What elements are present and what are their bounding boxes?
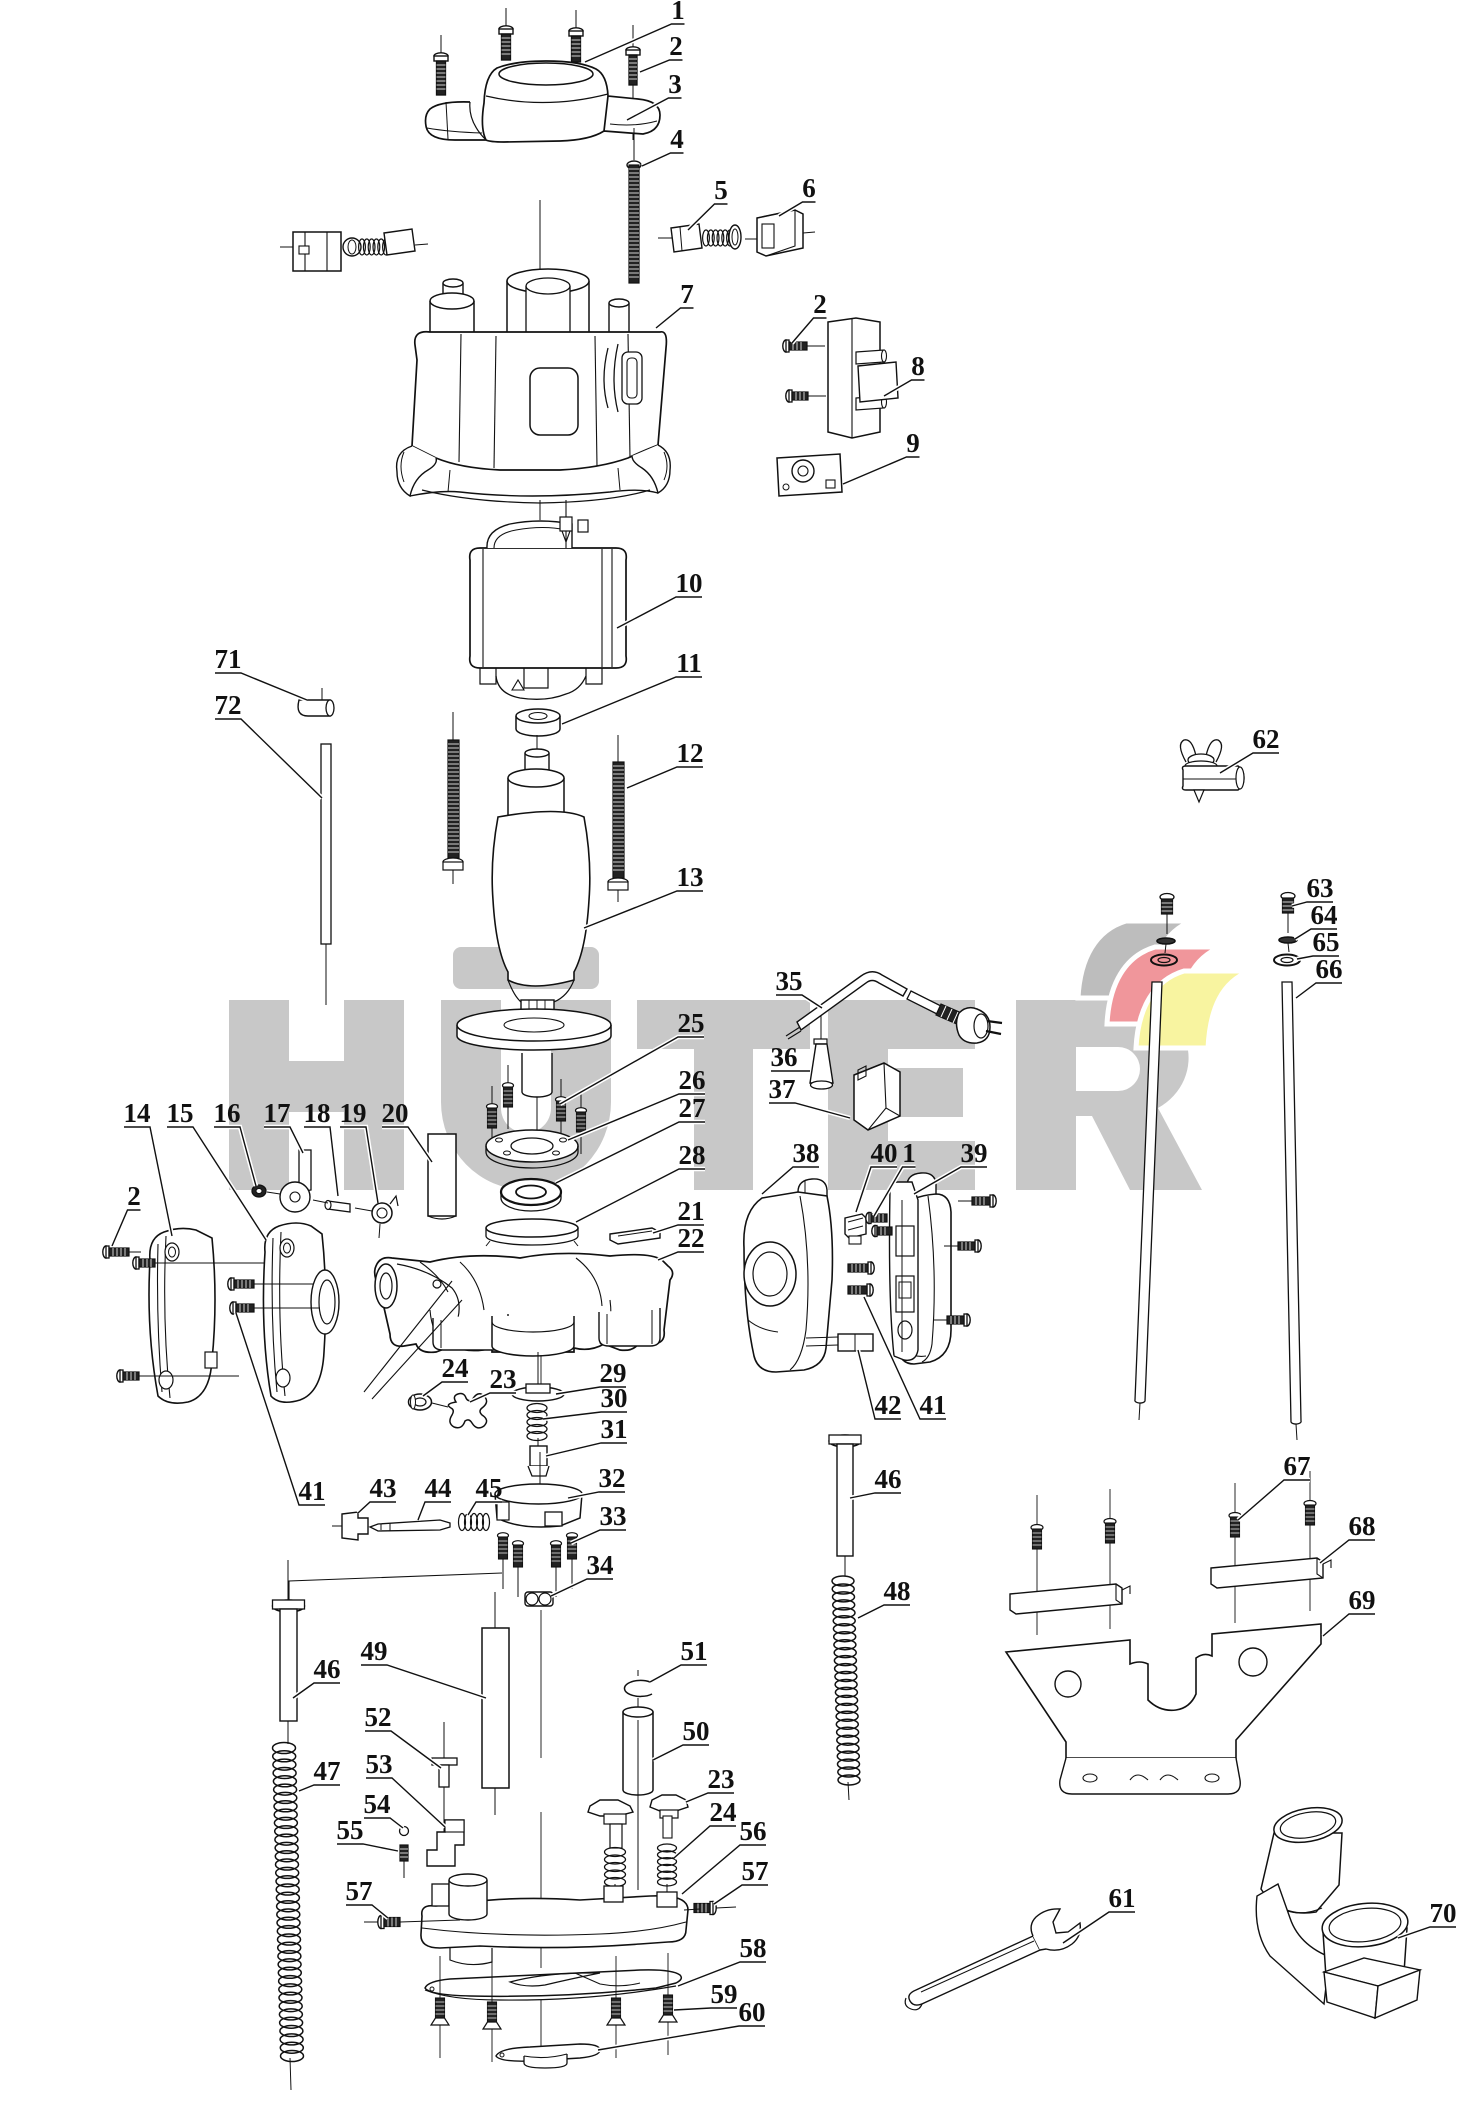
svg-text:39: 39 <box>961 1138 988 1168</box>
svg-text:55: 55 <box>337 1815 364 1845</box>
svg-text:2: 2 <box>669 31 683 61</box>
svg-text:22: 22 <box>678 1223 705 1253</box>
svg-text:15: 15 <box>167 1098 194 1128</box>
svg-text:6: 6 <box>802 173 816 203</box>
svg-text:11: 11 <box>676 648 702 678</box>
svg-text:41: 41 <box>299 1476 326 1506</box>
svg-text:26: 26 <box>679 1065 706 1095</box>
svg-text:48: 48 <box>884 1576 911 1606</box>
svg-text:31: 31 <box>601 1414 628 1444</box>
svg-text:70: 70 <box>1430 1898 1457 1928</box>
svg-text:13: 13 <box>677 862 704 892</box>
svg-text:41: 41 <box>920 1390 947 1420</box>
svg-text:63: 63 <box>1307 873 1334 903</box>
svg-text:64: 64 <box>1311 900 1338 930</box>
svg-text:62: 62 <box>1253 724 1280 754</box>
svg-text:52: 52 <box>365 1702 392 1732</box>
svg-text:54: 54 <box>364 1789 391 1819</box>
svg-text:1: 1 <box>671 0 685 25</box>
svg-text:59: 59 <box>711 1979 738 2009</box>
svg-text:9: 9 <box>906 428 920 458</box>
svg-text:53: 53 <box>366 1749 393 1779</box>
svg-text:56: 56 <box>740 1816 767 1846</box>
svg-text:46: 46 <box>314 1654 341 1684</box>
svg-text:8: 8 <box>911 351 925 381</box>
svg-text:19: 19 <box>340 1098 367 1128</box>
svg-text:12: 12 <box>677 738 704 768</box>
svg-text:61: 61 <box>1109 1883 1136 1913</box>
svg-text:18: 18 <box>304 1098 331 1128</box>
svg-text:35: 35 <box>776 966 803 996</box>
svg-text:58: 58 <box>740 1933 767 1963</box>
svg-text:69: 69 <box>1349 1585 1376 1615</box>
svg-text:51: 51 <box>681 1636 708 1666</box>
svg-text:17: 17 <box>264 1098 291 1128</box>
svg-text:46: 46 <box>875 1464 902 1494</box>
svg-text:60: 60 <box>739 1997 766 2027</box>
svg-text:20: 20 <box>382 1098 409 1128</box>
svg-text:66: 66 <box>1316 954 1343 984</box>
svg-text:57: 57 <box>742 1856 769 1886</box>
svg-text:23: 23 <box>490 1364 517 1394</box>
svg-text:25: 25 <box>678 1008 705 1038</box>
svg-text:68: 68 <box>1349 1511 1376 1541</box>
svg-text:34: 34 <box>587 1550 614 1580</box>
svg-text:23: 23 <box>708 1764 735 1794</box>
svg-text:7: 7 <box>680 279 694 309</box>
svg-text:5: 5 <box>714 175 728 205</box>
svg-text:14: 14 <box>124 1098 151 1128</box>
svg-text:28: 28 <box>679 1140 706 1170</box>
svg-text:24: 24 <box>442 1353 469 1383</box>
svg-text:3: 3 <box>668 69 682 99</box>
svg-text:24: 24 <box>710 1797 737 1827</box>
svg-text:21: 21 <box>678 1196 705 1226</box>
svg-text:33: 33 <box>600 1501 627 1531</box>
svg-text:1: 1 <box>902 1138 916 1168</box>
svg-text:16: 16 <box>214 1098 241 1128</box>
svg-text:4: 4 <box>670 124 684 154</box>
svg-text:38: 38 <box>793 1138 820 1168</box>
svg-text:2: 2 <box>127 1181 141 1211</box>
svg-text:57: 57 <box>346 1876 373 1906</box>
svg-text:40: 40 <box>871 1138 898 1168</box>
svg-text:47: 47 <box>314 1756 341 1786</box>
svg-text:36: 36 <box>771 1042 798 1072</box>
svg-text:67: 67 <box>1284 1451 1311 1481</box>
svg-text:50: 50 <box>683 1716 710 1746</box>
svg-text:43: 43 <box>370 1473 397 1503</box>
svg-text:65: 65 <box>1313 927 1340 957</box>
svg-text:45: 45 <box>476 1473 503 1503</box>
svg-text:10: 10 <box>676 568 703 598</box>
svg-text:42: 42 <box>875 1390 902 1420</box>
svg-text:30: 30 <box>601 1383 628 1413</box>
svg-text:37: 37 <box>769 1074 796 1104</box>
svg-text:32: 32 <box>599 1463 626 1493</box>
svg-text:71: 71 <box>215 644 242 674</box>
svg-text:44: 44 <box>425 1473 452 1503</box>
svg-text:27: 27 <box>679 1093 706 1123</box>
svg-text:49: 49 <box>361 1636 388 1666</box>
svg-text:2: 2 <box>813 289 827 319</box>
svg-text:72: 72 <box>215 690 242 720</box>
